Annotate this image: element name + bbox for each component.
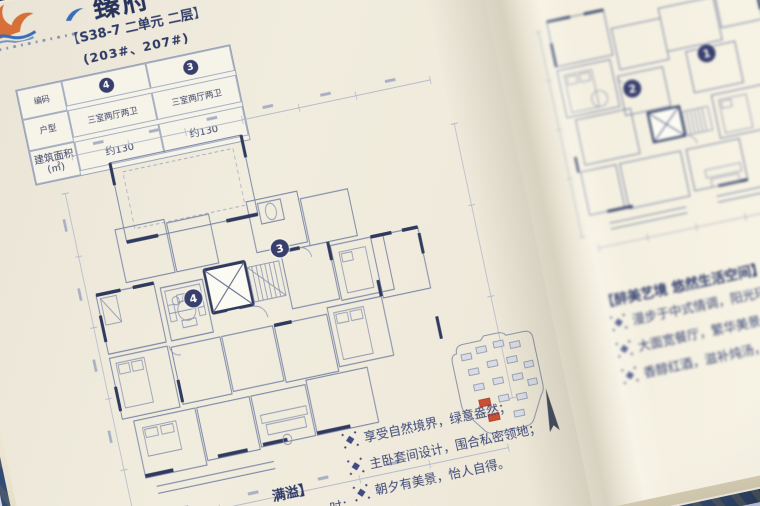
diamond-bullet-icon [614,318,622,326]
diamond-bullet-icon [352,462,360,470]
diamond-bullet-icon [626,371,634,379]
brochure-book: 臻府 【S38-7 二单元 二层】 (203#、207#) 编码 4 3 户型 … [0,0,760,506]
unit-badge-3: 3 [181,58,199,76]
wall-segments [547,0,760,216]
diamond-bullet-icon [620,344,628,352]
open-spread: 臻府 【S38-7 二单元 二层】 (203#、207#) 编码 4 3 户型 … [0,0,760,506]
diamond-bullet-icon [346,435,354,443]
diamond-bullet-icon [357,488,365,496]
elevator-core [204,262,253,313]
stairs [247,261,286,302]
stairs [682,106,712,135]
floor-plan-right [528,0,760,282]
photo-scene: 臻府 【S38-7 二单元 二层】 (203#、207#) 编码 4 3 户型 … [0,0,760,506]
unit-badge-4: 4 [97,76,115,94]
bracket-close: 】 [192,5,208,22]
dimension-lines [536,0,760,255]
swoosh-icon [62,4,87,27]
